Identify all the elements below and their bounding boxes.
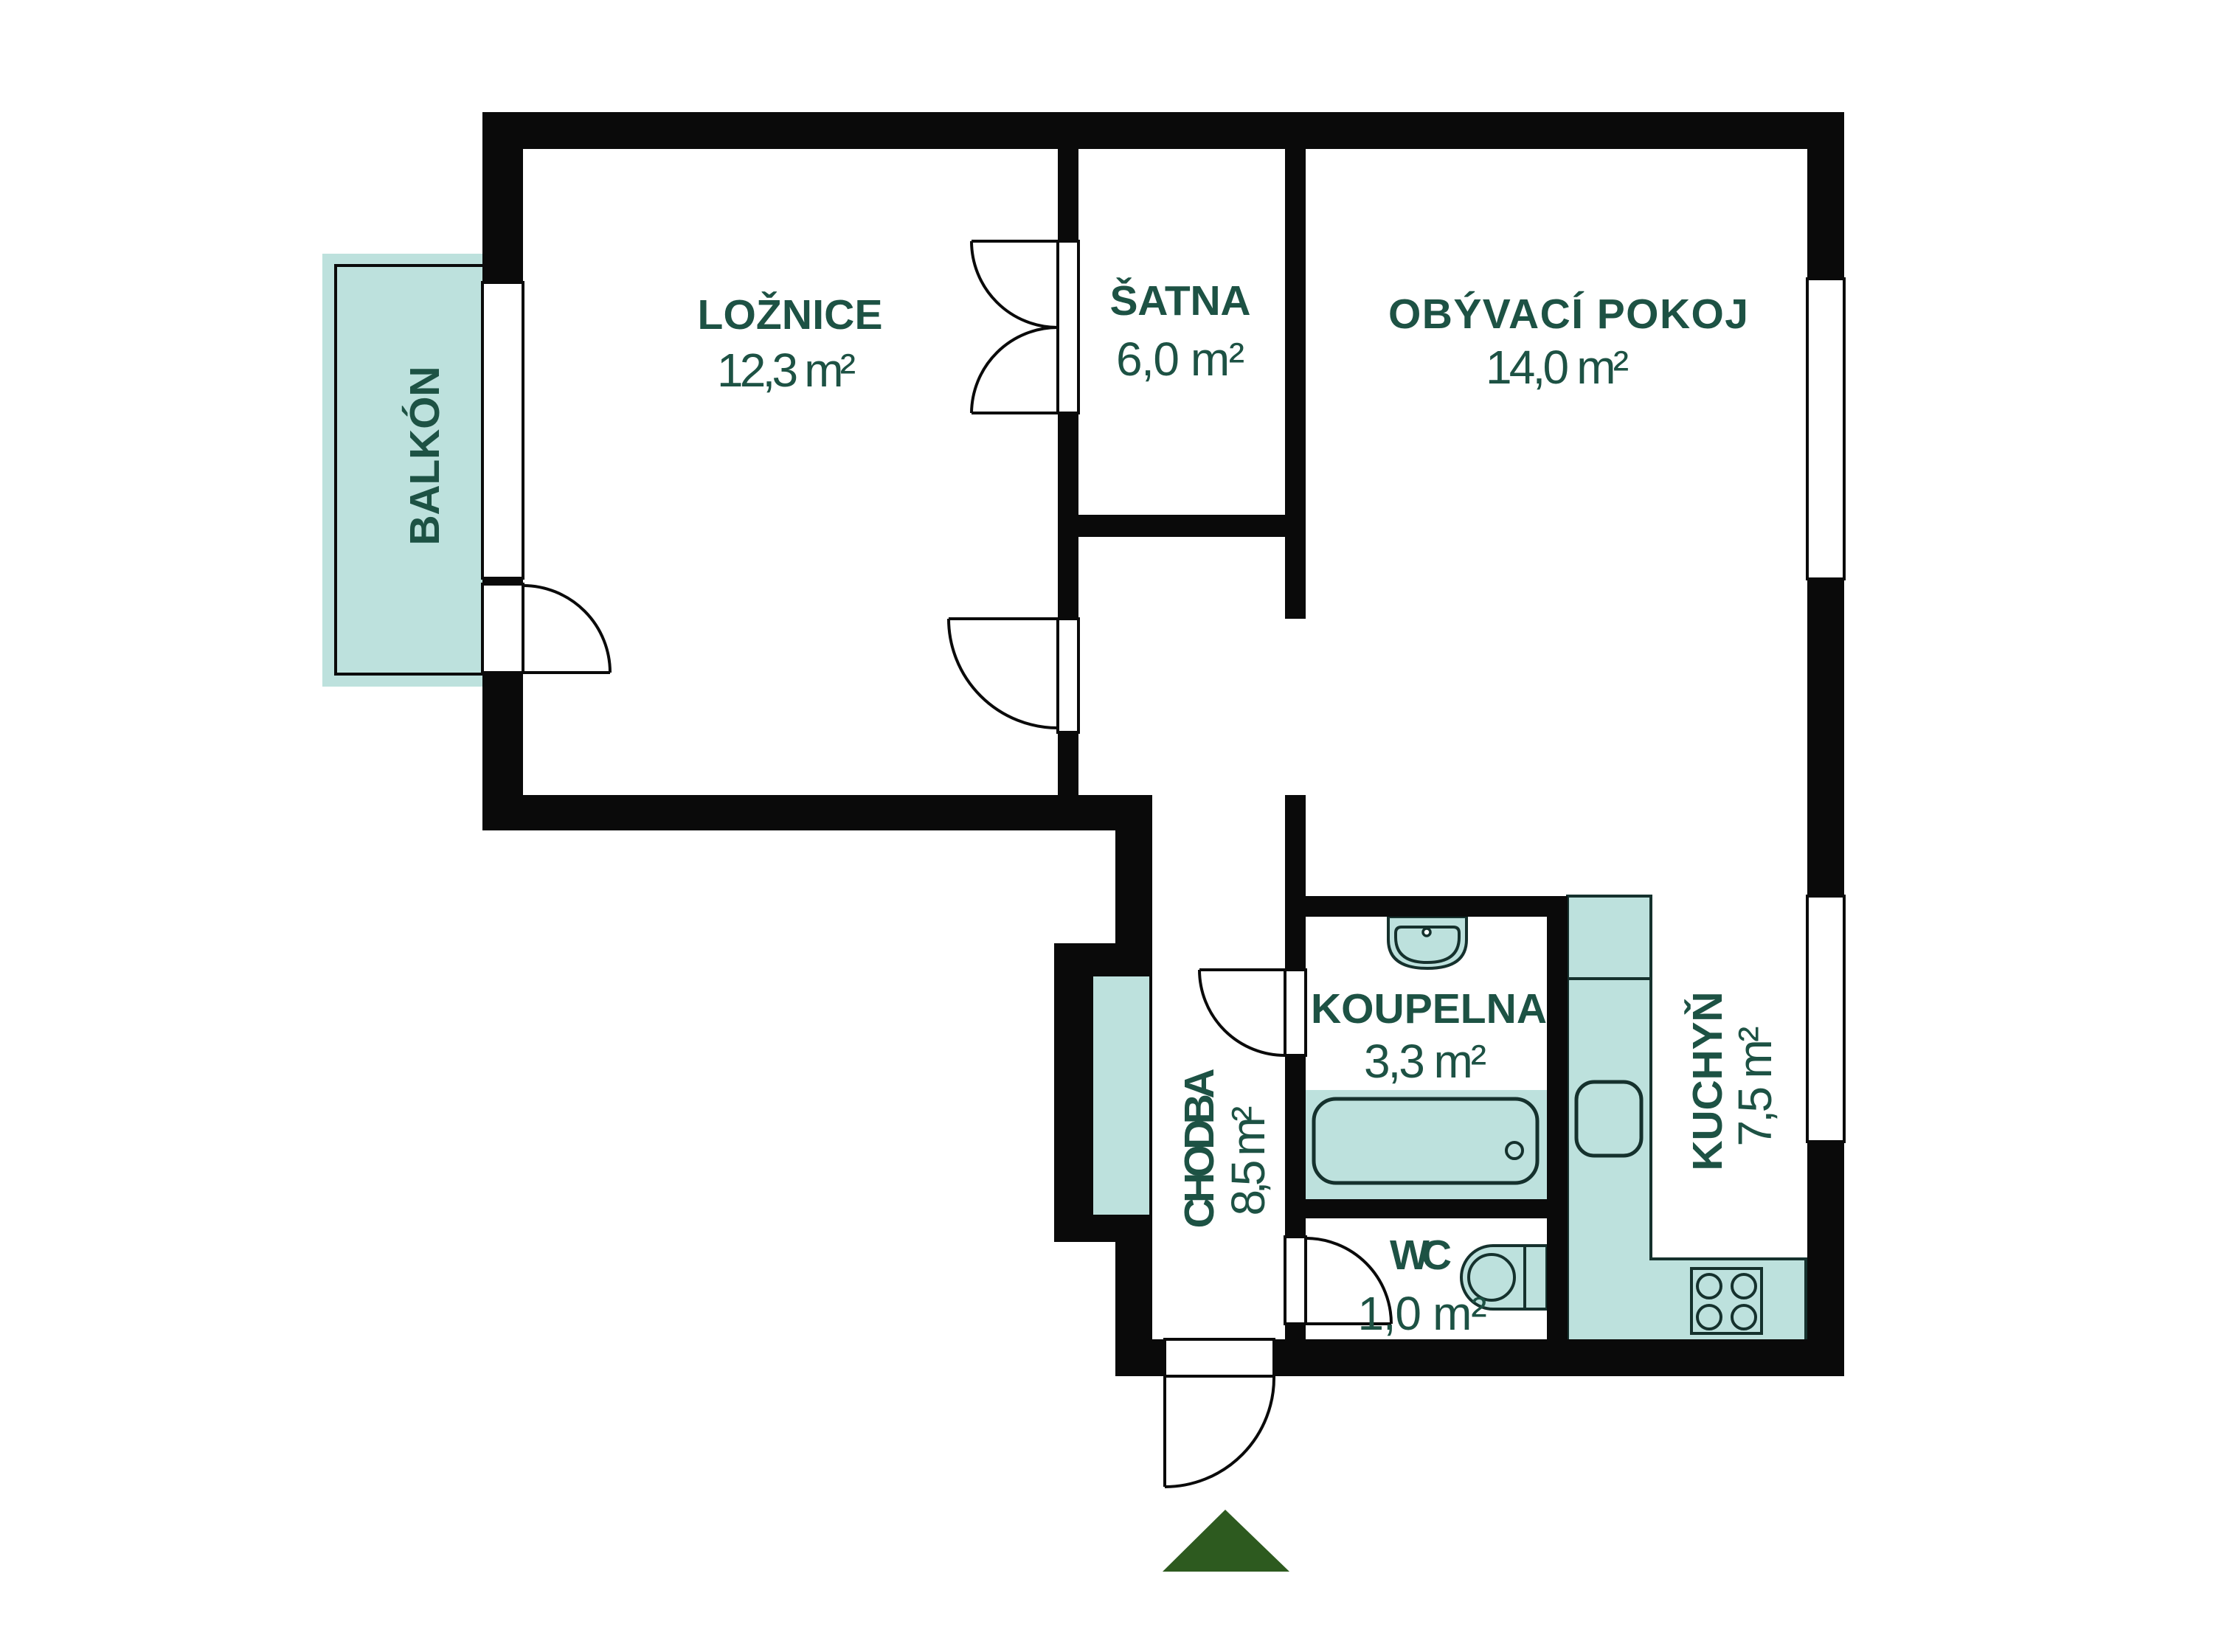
svg-text:KUCHYŇ: KUCHYŇ <box>1683 992 1731 1171</box>
svg-text:ŠATNA: ŠATNA <box>1110 277 1251 324</box>
svg-text:8,5 m²: 8,5 m² <box>1222 1106 1275 1216</box>
svg-text:14,0 m²: 14,0 m² <box>1486 341 1629 394</box>
svg-text:6,0 m²: 6,0 m² <box>1116 333 1244 386</box>
svg-text:OBÝVACÍ POKOJ: OBÝVACÍ POKOJ <box>1388 290 1748 338</box>
svg-text:7,5 m²: 7,5 m² <box>1728 1027 1781 1147</box>
svg-text:BALKÓN: BALKÓN <box>401 367 449 546</box>
svg-text:WC: WC <box>1390 1232 1452 1279</box>
svg-text:3,3 m²: 3,3 m² <box>1364 1035 1486 1088</box>
svg-text:CHODBA: CHODBA <box>1176 1069 1223 1229</box>
svg-text:LOŽNICE: LOŽNICE <box>698 291 883 339</box>
svg-text:1,0 m²: 1,0 m² <box>1358 1287 1487 1340</box>
svg-text:KOUPELNA: KOUPELNA <box>1311 985 1547 1032</box>
svg-text:12,3 m²: 12,3 m² <box>717 344 856 397</box>
